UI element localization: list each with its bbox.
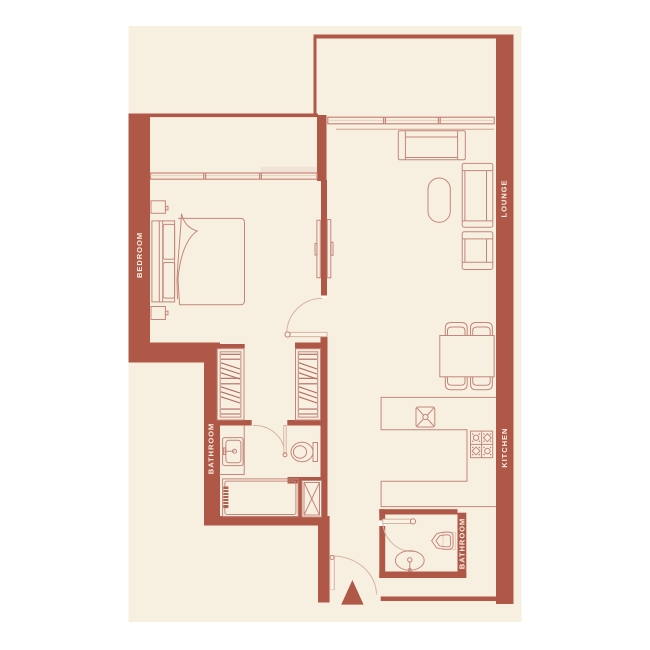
svg-text:KITCHEN: KITCHEN xyxy=(500,428,509,468)
svg-text:LOUNGE: LOUNGE xyxy=(500,180,509,218)
svg-text:BATHROOM: BATHROOM xyxy=(207,423,216,474)
svg-text:BEDROOM: BEDROOM xyxy=(135,232,144,278)
svg-text:BATHROOM: BATHROOM xyxy=(457,518,466,569)
